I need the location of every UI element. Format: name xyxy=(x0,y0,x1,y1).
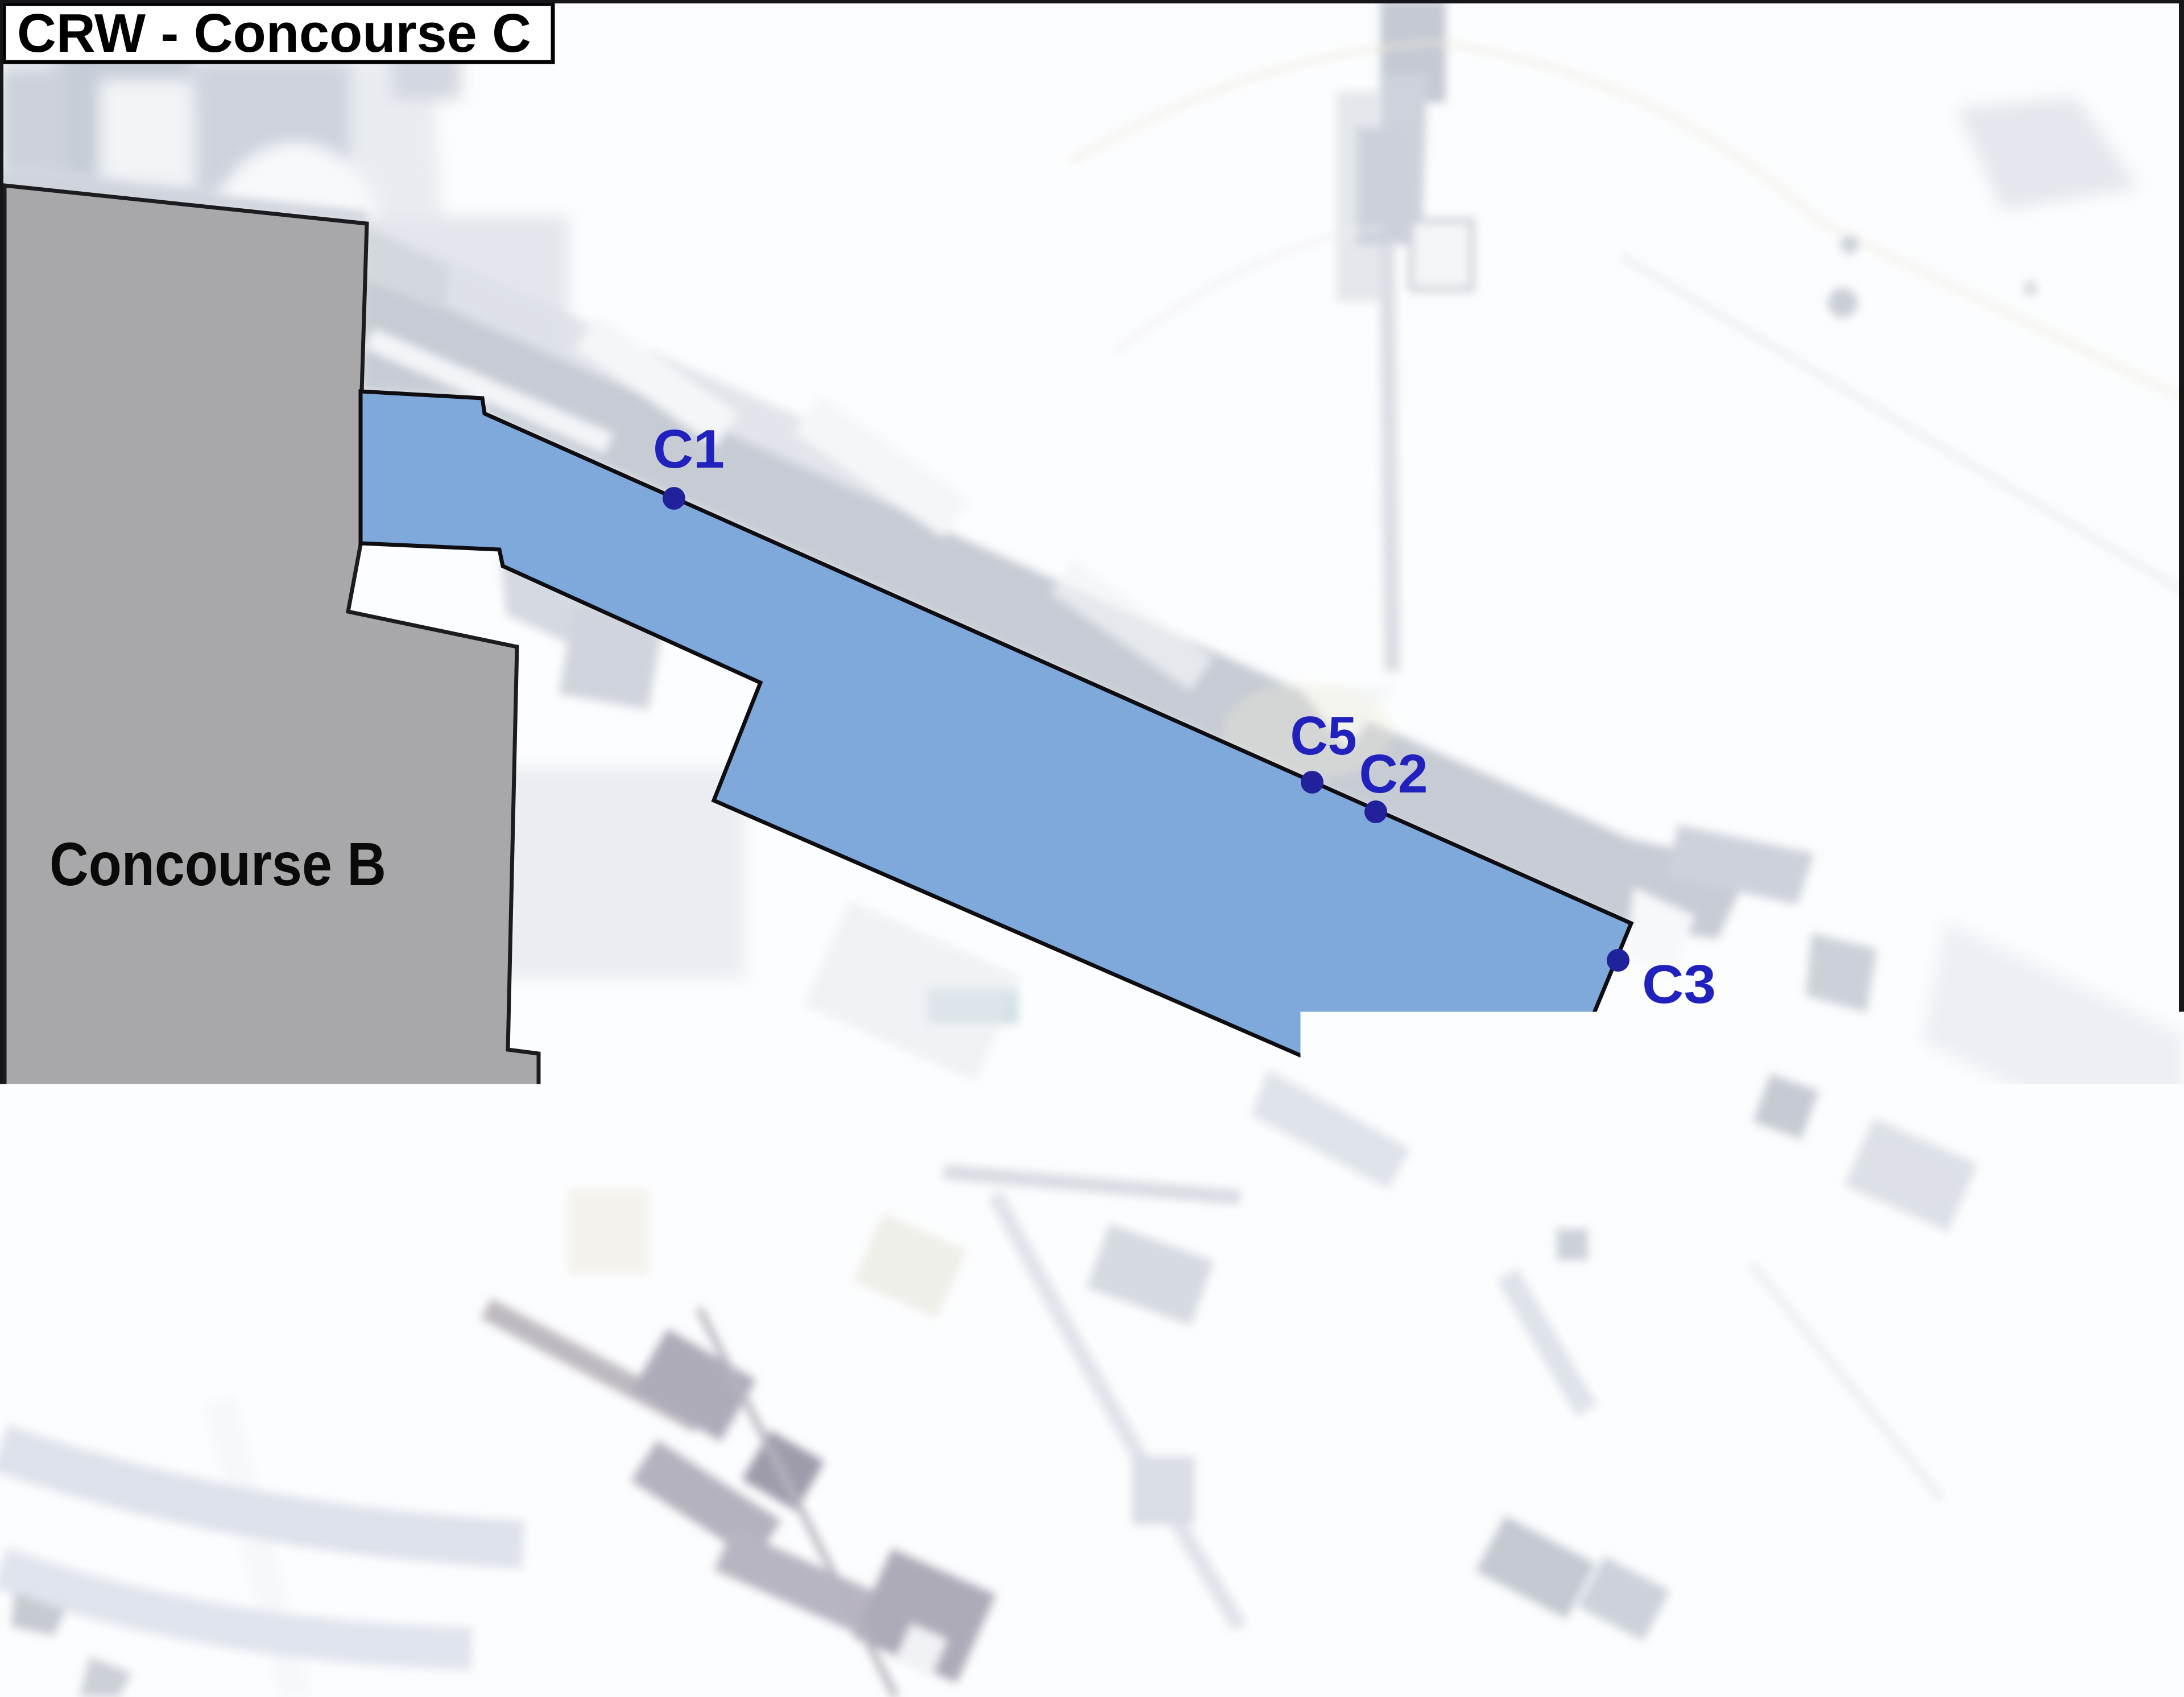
svg-text:C3: C3 xyxy=(1642,954,1716,1015)
svg-text:C1: C1 xyxy=(653,419,725,480)
svg-text:N: N xyxy=(2102,1615,2163,1697)
svg-text:C4: C4 xyxy=(1454,1165,1524,1225)
svg-text:CRW - Concourse C: CRW - Concourse C xyxy=(17,3,531,64)
svg-text:C2: C2 xyxy=(1359,744,1428,804)
svg-text:Concourse B: Concourse B xyxy=(49,829,386,898)
svg-text:C5: C5 xyxy=(1290,705,1357,766)
